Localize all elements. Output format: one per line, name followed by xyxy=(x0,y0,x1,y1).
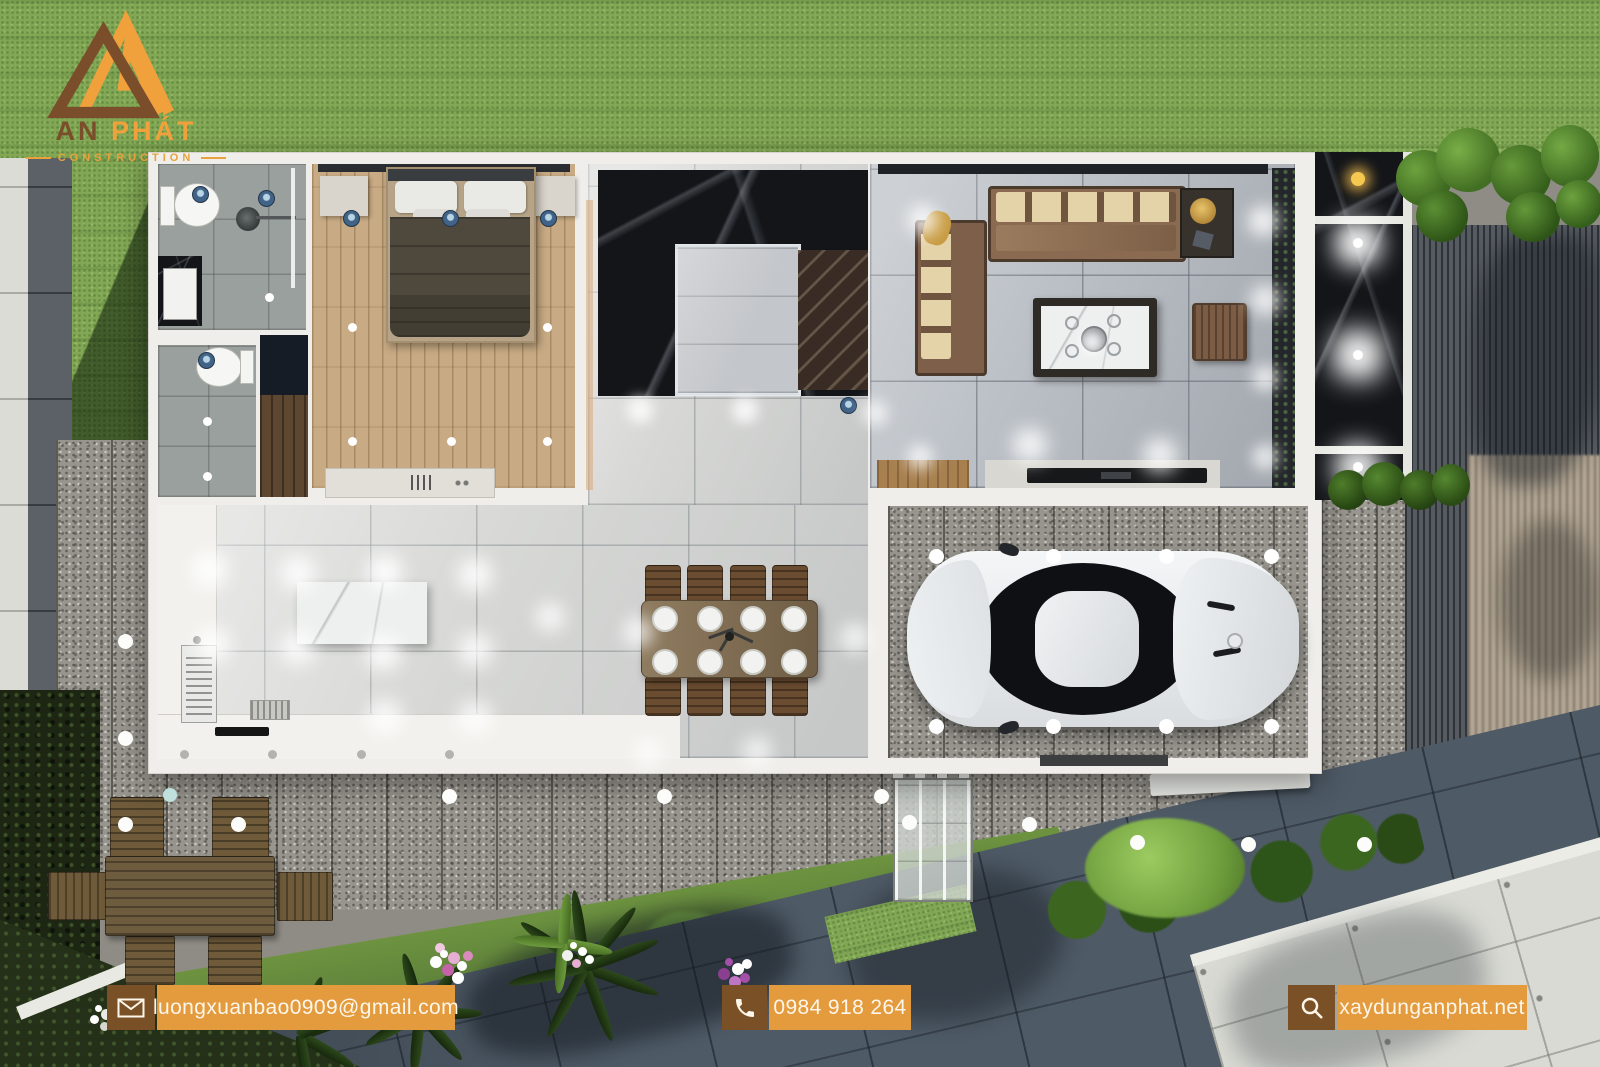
coffee-cup xyxy=(1065,316,1079,330)
shower-head xyxy=(236,207,260,231)
side-table xyxy=(1180,188,1234,258)
floor-plan-render: AN PHÁT CONSTRUCTION luongxuanbao0909@gm… xyxy=(0,0,1600,1067)
sensor-dot xyxy=(198,352,215,369)
car-emblem xyxy=(1227,633,1243,649)
bed xyxy=(386,167,536,343)
path-light-glow xyxy=(1353,350,1363,360)
vanity-sink xyxy=(163,268,197,320)
dining-chair xyxy=(772,676,808,716)
walkway-beam xyxy=(1315,446,1403,454)
plate xyxy=(740,649,766,675)
wardrobe xyxy=(260,335,308,395)
table-lamp xyxy=(1190,198,1216,224)
foyer-brown-tiles xyxy=(798,250,868,390)
dining-chair xyxy=(645,565,681,605)
sofa-vertical xyxy=(915,220,987,376)
sensor-dot xyxy=(840,397,857,414)
outdoor-chair xyxy=(277,872,333,921)
sensor-dot xyxy=(258,190,275,207)
outdoor-chair xyxy=(212,797,269,859)
nightstand xyxy=(531,176,575,216)
phone-icon xyxy=(733,996,757,1020)
tree-shadow-right-2 xyxy=(1500,520,1600,680)
outdoor-chair xyxy=(208,936,262,985)
sidewalk-left xyxy=(0,158,28,718)
kitchen-faucet xyxy=(193,636,201,644)
dining-chair xyxy=(730,565,766,605)
plate xyxy=(781,649,807,675)
coffee-cup xyxy=(1107,314,1121,328)
shower-arm xyxy=(256,216,296,219)
subtitle-dash xyxy=(26,157,51,159)
sofa-seat xyxy=(996,225,1176,251)
flower-cluster xyxy=(95,1005,102,1012)
toilet-tank xyxy=(240,350,254,384)
outdoor-chair xyxy=(48,872,108,920)
garage-gate-track xyxy=(1040,755,1168,766)
email-badge: luongxuanbao0909@gmail.com xyxy=(157,985,455,1030)
shrubs-top-right xyxy=(1396,120,1600,250)
website-icon-box xyxy=(1288,985,1335,1030)
bed-blanket xyxy=(390,217,530,303)
outdoor-chair xyxy=(125,936,175,985)
sofa-horizontal xyxy=(988,186,1186,262)
car-roof xyxy=(1035,591,1139,687)
bedroom-dresser xyxy=(325,468,495,498)
wood-shelf xyxy=(877,460,969,488)
tv-panel xyxy=(1027,468,1207,483)
closet-floor xyxy=(260,395,308,497)
sensor-dot xyxy=(343,210,360,227)
chandelier xyxy=(712,622,748,652)
plate xyxy=(697,649,723,675)
cooktop xyxy=(215,727,269,736)
outdoor-table xyxy=(105,856,275,936)
envelope-icon xyxy=(117,998,145,1018)
sensor-dot xyxy=(540,210,557,227)
company-logo: AN PHÁT CONSTRUCTION xyxy=(26,8,256,170)
tv-logo-area xyxy=(1101,472,1131,479)
logo-title-phat: PHÁT xyxy=(111,116,197,146)
living-plant-strip xyxy=(1272,168,1295,488)
plate xyxy=(652,649,678,675)
logo-title-an: AN xyxy=(55,116,100,146)
subtitle-dash xyxy=(201,157,226,159)
shrubs-mid-right xyxy=(1328,462,1470,517)
path-light-glow xyxy=(1353,238,1363,248)
outdoor-chair xyxy=(110,797,164,859)
sensor-dot xyxy=(442,210,459,227)
plate xyxy=(652,606,678,632)
bedroom-door xyxy=(586,200,593,490)
phone-badge: 0984 918 264 xyxy=(769,985,911,1030)
phone-value: 0984 918 264 xyxy=(773,996,906,1020)
flower-cluster xyxy=(725,958,733,966)
dresser-decor xyxy=(454,479,470,487)
patio-light-teal xyxy=(163,788,177,802)
stair-landing xyxy=(675,244,801,396)
dining-chair xyxy=(772,565,808,605)
website-badge: xaydunganphat.net xyxy=(1337,985,1527,1030)
logo-mark-icon xyxy=(40,8,210,120)
lawn-left-shadow xyxy=(72,158,152,450)
phone-icon-box xyxy=(722,985,767,1030)
sofa-cushions xyxy=(921,229,951,359)
sofa-cushions xyxy=(996,192,1176,222)
flower-cluster xyxy=(440,950,448,958)
dining-chair xyxy=(730,676,766,716)
sensor-dot xyxy=(192,186,209,203)
flower-cluster xyxy=(570,942,577,949)
path-light-warm xyxy=(1351,172,1365,186)
dresser-decor xyxy=(411,475,433,490)
website-value: xaydunganphat.net xyxy=(1339,996,1524,1020)
table-decor xyxy=(1192,230,1214,250)
nightstand xyxy=(320,176,368,216)
coffee-cup xyxy=(1065,344,1079,358)
coffee-tray xyxy=(1081,326,1107,352)
shower-glass xyxy=(291,168,295,288)
bed-duvet-fold xyxy=(390,295,530,337)
tree-shadow-right xyxy=(1475,235,1600,485)
plate xyxy=(781,606,807,632)
small-appliance xyxy=(250,700,290,720)
car-trunk xyxy=(907,560,991,718)
dining-chair xyxy=(687,565,723,605)
logo-title: AN PHÁT xyxy=(26,116,226,147)
walkway-beam xyxy=(1315,216,1403,224)
logo-subtitle: CONSTRUCTION xyxy=(58,152,195,164)
kitchen-island xyxy=(297,582,427,644)
living-window-strip xyxy=(878,164,1268,174)
bush-light-green xyxy=(1085,818,1245,918)
logo-subtitle-row: CONSTRUCTION xyxy=(26,152,226,164)
kitchen-sink xyxy=(181,645,217,723)
bed-headboard xyxy=(388,169,534,181)
dish-rack xyxy=(186,653,212,715)
glass-pergola xyxy=(893,778,973,902)
email-icon-box xyxy=(107,985,155,1030)
coffee-table xyxy=(1033,298,1157,377)
car xyxy=(907,551,1299,727)
search-icon xyxy=(1299,995,1325,1021)
toilet-tank xyxy=(160,186,175,226)
ottoman xyxy=(1192,303,1247,361)
kitchen-counter-bottom xyxy=(158,714,680,759)
coffee-cup xyxy=(1107,342,1121,356)
email-value: luongxuanbao0909@gmail.com xyxy=(153,996,459,1020)
dining-chair xyxy=(645,676,681,716)
dining-chair xyxy=(687,676,723,716)
